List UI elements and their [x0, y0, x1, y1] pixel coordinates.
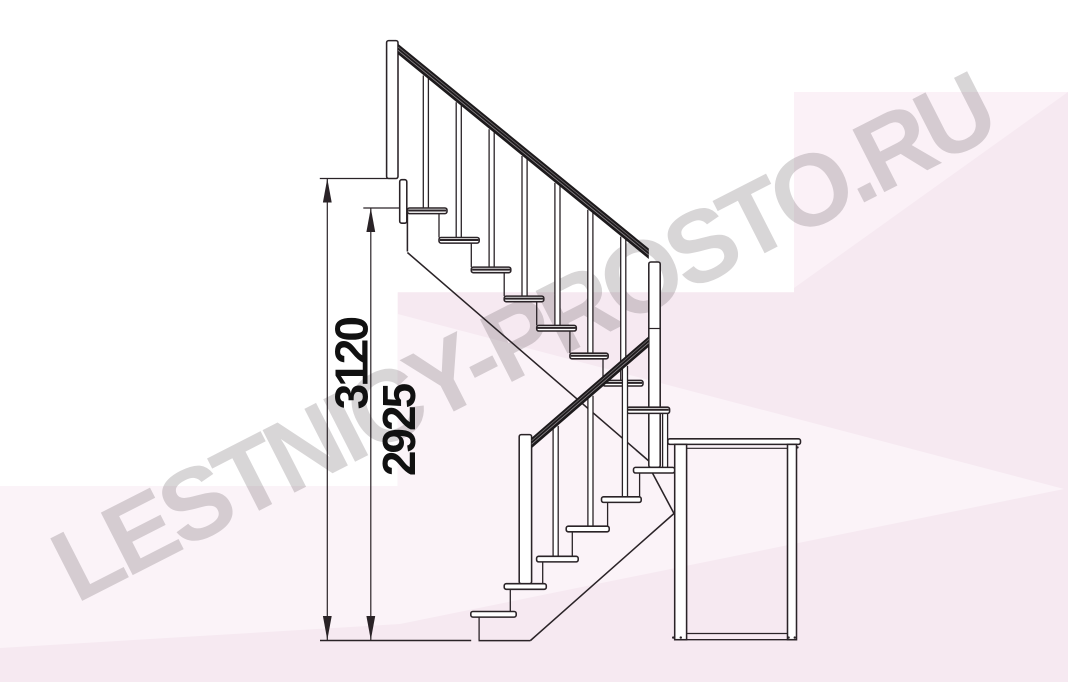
svg-text:2925: 2925 [373, 383, 425, 476]
svg-text:3120: 3120 [325, 318, 377, 410]
